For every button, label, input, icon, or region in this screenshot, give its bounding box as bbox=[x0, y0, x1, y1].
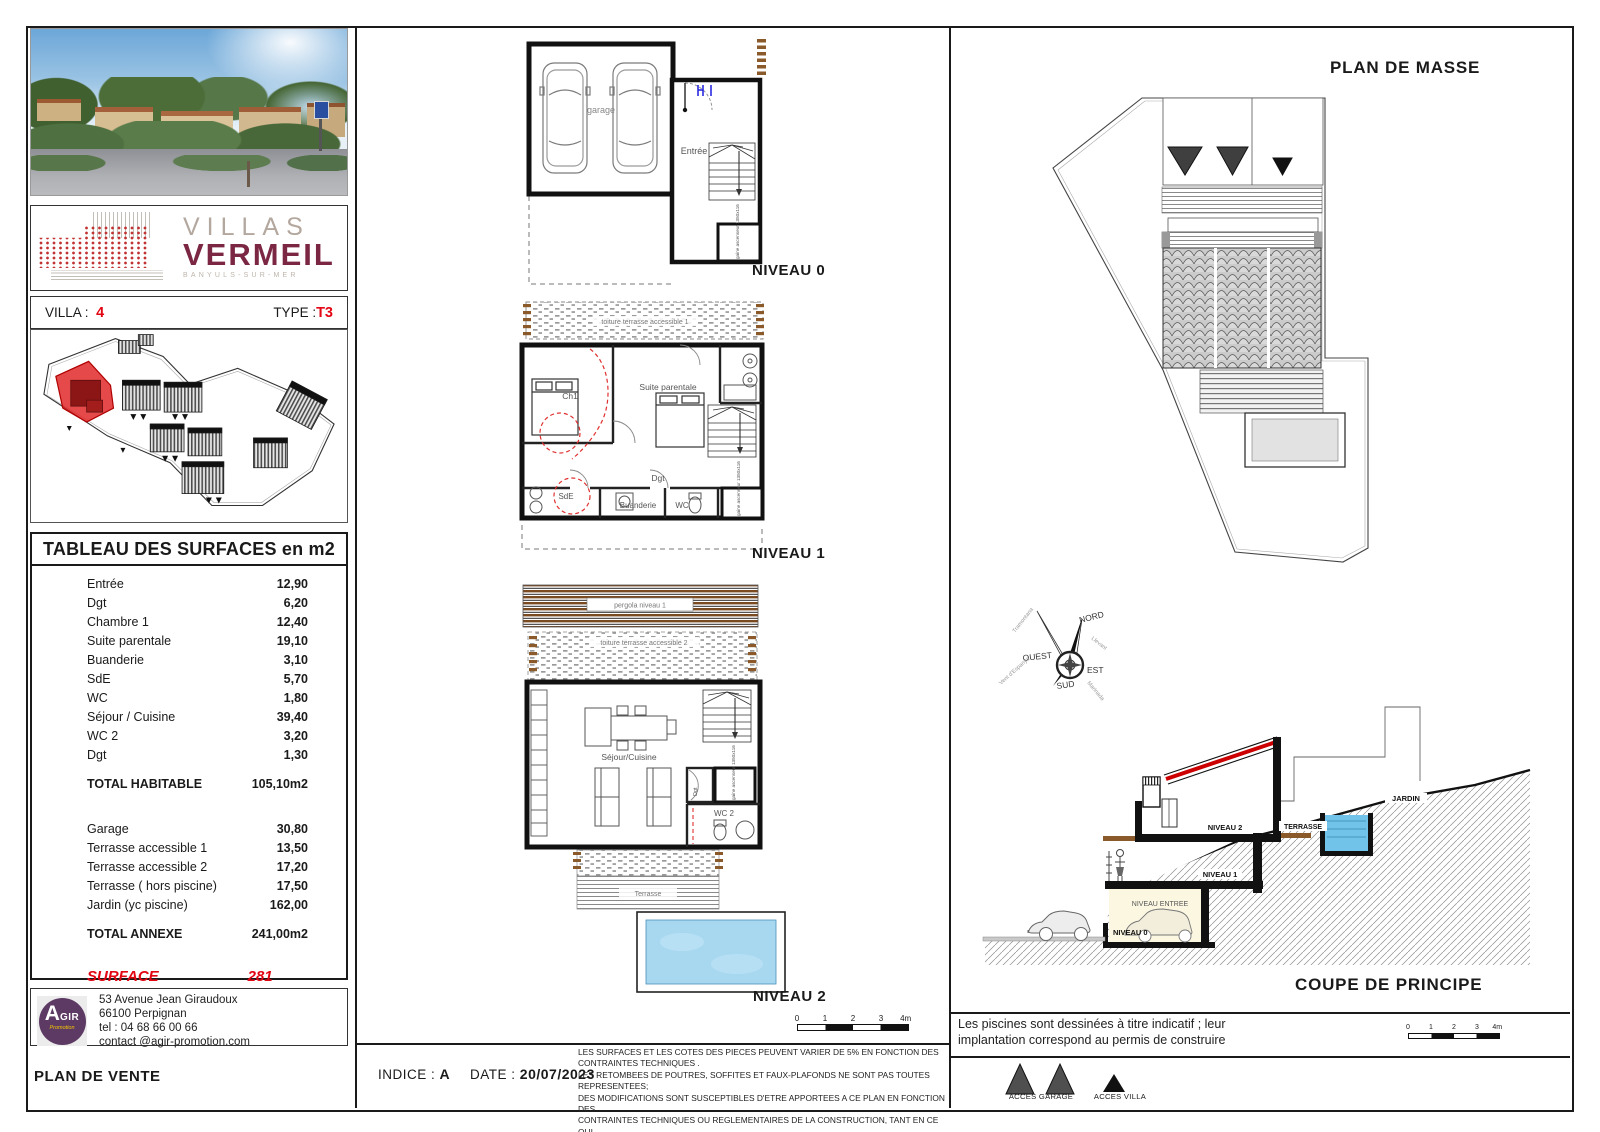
indice-field: INDICE : A bbox=[378, 1066, 450, 1082]
table-row: Terrasse ( hors piscine)17,50 bbox=[32, 877, 346, 896]
table-row: Buanderie3,10 bbox=[32, 651, 346, 670]
table-row: Chambre 112,40 bbox=[32, 613, 346, 632]
coupe-drawing: NIVEAU ENTREE NIVEAU 0 bbox=[953, 693, 1563, 983]
n1-roof-strip: toiture terrasse accessible 1 bbox=[523, 302, 764, 339]
total-habitable-row: TOTAL HABITABLE105,10m2 bbox=[32, 775, 346, 794]
niveau2-label: NIVEAU 2 bbox=[753, 988, 826, 1005]
n2-dgt-room: Dgt bbox=[687, 768, 713, 802]
compass-ne-wind-label: Llevant bbox=[1090, 636, 1108, 652]
photo-blue-sign bbox=[314, 101, 329, 119]
acces-garage-icon bbox=[1046, 1064, 1074, 1094]
logo-hlines-pattern bbox=[51, 270, 163, 280]
n0-gaine-label: gaine ascenseur 1350x116 bbox=[735, 204, 740, 259]
n2-pergola: pergola niveau 1 bbox=[523, 585, 758, 627]
n1-dgt-label: Dgt bbox=[651, 473, 665, 483]
divider-middle-right bbox=[949, 26, 951, 1108]
divider-left-middle bbox=[355, 26, 357, 1108]
brand-city: BANYULS-SUR-MER bbox=[183, 272, 343, 279]
acces-garage-icon bbox=[1006, 1064, 1034, 1094]
acces-villa-icon bbox=[1103, 1074, 1125, 1092]
coupe-garage: NIVEAU ENTREE NIVEAU 0 bbox=[1103, 889, 1215, 948]
piscines-note: Les piscines sont dessinées à titre indi… bbox=[958, 1017, 1270, 1048]
coupe-pool bbox=[1320, 813, 1373, 856]
n0-pergola-ticks bbox=[757, 39, 766, 75]
n2-terrasse-label: Terrasse bbox=[635, 891, 662, 898]
acces-garage-label: ACCES GARAGE bbox=[1000, 1092, 1082, 1101]
date-field: DATE : 20/07/2023 bbox=[470, 1066, 595, 1082]
photo-road-verge bbox=[31, 155, 348, 171]
villa-number: 4 bbox=[96, 305, 104, 321]
plan-de-masse-title: PLAN DE MASSE bbox=[1330, 58, 1480, 78]
coupe-title: COUPE DE PRINCIPE bbox=[1295, 975, 1482, 995]
coupe-niveau0-label: NIVEAU 0 bbox=[1113, 928, 1148, 937]
n2-strip-label: toiture terrasse accessible 2 bbox=[600, 640, 687, 647]
plan-de-vente-sheet: VILLAS VERMEIL BANYULS-SUR-MER VILLA : 4… bbox=[0, 0, 1600, 1132]
bed-icon-suite bbox=[656, 393, 704, 447]
bed-icon-ch1 bbox=[532, 379, 578, 435]
n2-terrasse-bands: Terrasse bbox=[573, 850, 723, 909]
right-note-top-line bbox=[949, 1012, 1570, 1014]
photo-bollard bbox=[247, 161, 250, 187]
n1-sde-label: SdE bbox=[558, 492, 573, 501]
coupe-road-car bbox=[983, 911, 1105, 941]
n2-gaine-label: gaine ascenseur 1350x116 bbox=[731, 745, 736, 800]
coupe-niveau2-label: NIVEAU 2 bbox=[1208, 823, 1243, 832]
masse-pergola-band bbox=[1162, 187, 1322, 213]
niveau1-label: NIVEAU 1 bbox=[752, 545, 825, 562]
highlighted-villa-4 bbox=[56, 361, 114, 422]
promoter-box: AGIR Promotion 53 Avenue Jean Giraudoux … bbox=[30, 988, 348, 1046]
middle-footer-line bbox=[355, 1043, 951, 1045]
coupe-niveau-entree-label: NIVEAU ENTREE bbox=[1132, 901, 1189, 908]
table-row: Suite parentale19,10 bbox=[32, 632, 346, 651]
n2-wc2-label: WC 2 bbox=[714, 809, 735, 818]
villa-label: VILLA : bbox=[45, 305, 89, 320]
table-row: Terrasse accessible 217,20 bbox=[32, 858, 346, 877]
floorplan-niveau0: garage Entrée gaine ascenseur 1350x116 bbox=[513, 33, 768, 291]
masse-pool bbox=[1245, 413, 1345, 467]
villa-type-box: VILLA : 4 TYPE :T3 bbox=[30, 296, 348, 329]
neighbor-buildings bbox=[118, 335, 327, 494]
table-row: Dgt1,30 bbox=[32, 746, 346, 765]
site-photo bbox=[30, 28, 348, 196]
table-row: WC1,80 bbox=[32, 689, 346, 708]
n2-sejour-label: Séjour/Cuisine bbox=[601, 752, 657, 762]
n0-entree-label: Entrée bbox=[681, 146, 708, 156]
site-location-plan bbox=[30, 329, 348, 523]
coupe-jardin-label: JARDIN bbox=[1392, 794, 1420, 803]
indice-value: A bbox=[440, 1066, 451, 1082]
compass-sw-wind-label: Vent d'Espanya bbox=[998, 656, 1031, 687]
surfaces-table: TABLEAU DES SURFACES en m2 Entrée12,90 D… bbox=[30, 532, 348, 980]
table-row: Dgt6,20 bbox=[32, 594, 346, 613]
table-row: Terrasse accessible 113,50 bbox=[32, 839, 346, 858]
masse-stripe-band bbox=[1162, 232, 1322, 248]
coupe-niveau1-label: NIVEAU 1 bbox=[1203, 870, 1238, 879]
promoter-address: 53 Avenue Jean Giraudoux 66100 Perpignan… bbox=[99, 993, 250, 1049]
brand-name-bottom: VERMEIL bbox=[183, 240, 343, 270]
agir-logo-gir: GIR bbox=[60, 1012, 79, 1023]
masse-tiled-roof bbox=[1163, 248, 1321, 368]
pool-icon bbox=[637, 912, 785, 992]
compass-nw-wind-label: Tramontana bbox=[1012, 606, 1036, 634]
n2-pergola-label: pergola niveau 1 bbox=[614, 603, 666, 610]
masse-terrace-band bbox=[1200, 370, 1323, 413]
brand-logo-box: VILLAS VERMEIL BANYULS-SUR-MER bbox=[30, 205, 348, 291]
surfaces-table-title: TABLEAU DES SURFACES en m2 bbox=[32, 534, 346, 560]
table-row: Garage30,80 bbox=[32, 820, 346, 839]
n1-ch1-label: Ch1 bbox=[562, 391, 578, 401]
floorplan-niveau1: toiture terrasse accessible 1 bbox=[510, 293, 785, 555]
agir-logo-a: A bbox=[45, 1002, 60, 1025]
logo-dots-pattern bbox=[39, 226, 147, 268]
agir-logo: AGIR Promotion bbox=[37, 996, 87, 1046]
n2-roof-strip: toiture terrasse accessible 2 bbox=[528, 632, 757, 680]
compass-north-label: NORD bbox=[1078, 609, 1105, 625]
table-row: SdE5,70 bbox=[32, 670, 346, 689]
n1-wc-label: WC bbox=[675, 501, 689, 510]
scalebar-right: 0 1 2 3 4m bbox=[1408, 1024, 1500, 1039]
table-row: WC 23,20 bbox=[32, 727, 346, 746]
n1-dashed-parcel bbox=[522, 525, 762, 549]
compass-south-label: SUD bbox=[1056, 679, 1075, 691]
floorplan-niveau2: pergola niveau 1 toiture terrasse access… bbox=[507, 572, 799, 997]
compass-east-label: EST bbox=[1087, 665, 1104, 675]
n0-garage-label: garage bbox=[587, 105, 615, 115]
scalebar-middle: 0 1 2 3 4m bbox=[797, 1014, 909, 1031]
n1-gaine-label: gaine ascenseur 1350x116 bbox=[736, 461, 741, 516]
coupe-neighbor-outline bbox=[1281, 707, 1420, 801]
plan-de-masse-drawing bbox=[1018, 88, 1463, 608]
agir-logo-promotion: Promotion bbox=[49, 1023, 74, 1033]
acces-villa-label: ACCES VILLA bbox=[1090, 1092, 1150, 1101]
table-row: Jardin (yc piscine)162,00 bbox=[32, 896, 346, 915]
n1-suite-label: Suite parentale bbox=[639, 382, 696, 392]
total-annexe-row: TOTAL ANNEXE241,00m2 bbox=[32, 925, 346, 944]
type-value: T3 bbox=[316, 305, 333, 321]
niveau0-label: NIVEAU 0 bbox=[752, 262, 825, 279]
compass-dial bbox=[1057, 652, 1083, 678]
plan-de-vente-title: PLAN DE VENTE bbox=[34, 1068, 161, 1085]
table-row: Entrée12,90 bbox=[32, 575, 346, 594]
n2-dgt-label: Dgt bbox=[693, 787, 699, 796]
type-label: TYPE : bbox=[273, 305, 316, 320]
n1-buanderie-label: Buanderie bbox=[620, 501, 657, 510]
coupe-terrasse-label: TERRASSE bbox=[1284, 824, 1322, 831]
table-row: Séjour / Cuisine39,40 bbox=[32, 708, 346, 727]
masse-white-band bbox=[1168, 218, 1318, 232]
n1-strip-label: toiture terrasse accessible 1 bbox=[601, 319, 688, 326]
legal-disclaimer: LES SURFACES ET LES COTES DES PIECES PEU… bbox=[578, 1047, 950, 1132]
